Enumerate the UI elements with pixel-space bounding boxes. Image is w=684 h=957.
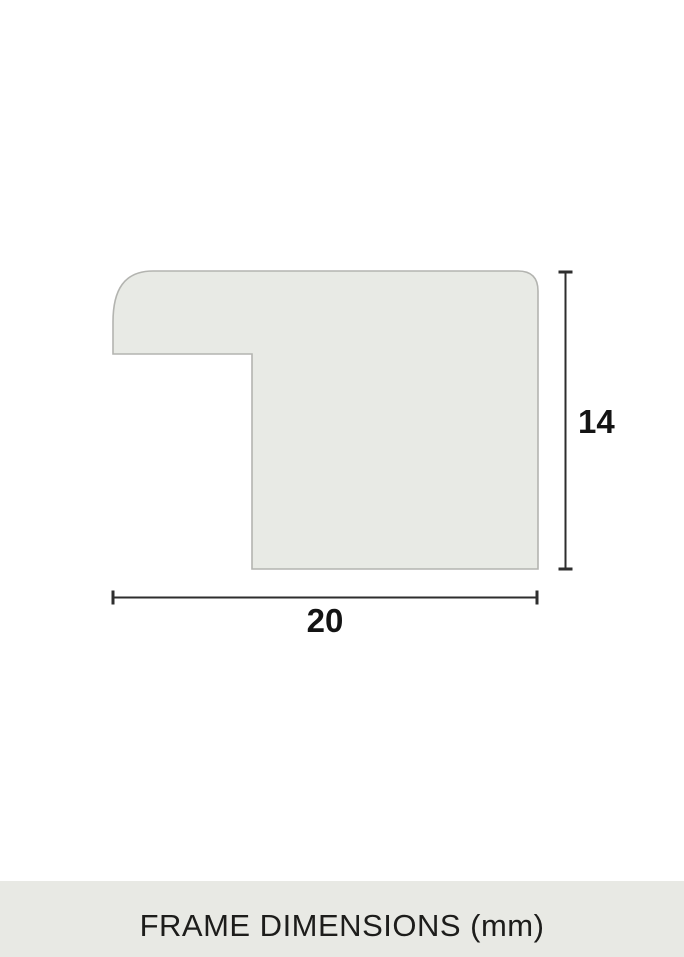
frame-dimensions-page: 14 20 FRAME DIMENSIONS (mm) xyxy=(0,0,684,957)
frame-profile-shape xyxy=(113,271,538,569)
frame-profile-diagram: 14 20 xyxy=(0,0,684,881)
footer-bar: FRAME DIMENSIONS (mm) xyxy=(0,881,684,957)
width-dimension: 20 xyxy=(113,591,537,640)
height-dimension: 14 xyxy=(559,272,616,569)
diagram-area: 14 20 xyxy=(0,0,684,881)
height-dimension-label: 14 xyxy=(578,403,615,440)
footer-title: FRAME DIMENSIONS (mm) xyxy=(140,908,545,944)
width-dimension-label: 20 xyxy=(307,602,344,639)
